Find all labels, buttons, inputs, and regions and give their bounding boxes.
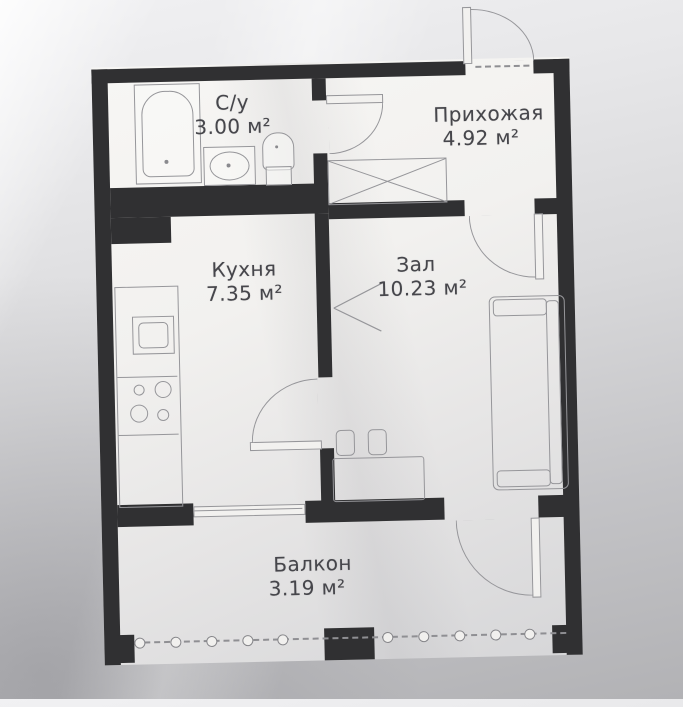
kitchen-sink-bowl	[138, 322, 169, 349]
sofa-armrest	[497, 469, 551, 487]
room-label-balcony: Балкон 3.19 м²	[273, 551, 353, 601]
room-label-hallway: Прихожая 4.92 м²	[433, 100, 544, 150]
room-label-kitchen: Кухня 7.35 м²	[205, 256, 283, 306]
wall	[538, 495, 565, 518]
wall	[534, 198, 558, 215]
bathtub-drain	[164, 160, 168, 164]
wall	[552, 625, 569, 653]
floor-plan: С/у 3.00 м² Прихожая 4.92 м² Кухня 7.35 …	[0, 0, 683, 707]
room-name: Зал	[371, 251, 461, 277]
wall	[312, 78, 326, 100]
toilet-tank	[266, 166, 292, 186]
stool	[368, 429, 388, 455]
room-name: Кухня	[205, 256, 282, 282]
toilet-drain	[275, 145, 278, 148]
wardrobe	[327, 158, 447, 206]
room-name: Прихожая	[433, 100, 544, 126]
washbasin-drain	[227, 163, 231, 167]
room-label-bathroom: С/у 3.00 м²	[193, 90, 271, 140]
room-area: 3.19 м²	[268, 575, 347, 601]
room-area: 4.92 м²	[426, 124, 537, 150]
table	[332, 456, 425, 502]
wall	[110, 183, 329, 218]
wall	[313, 153, 328, 184]
toilet	[262, 132, 295, 171]
wall	[111, 217, 172, 244]
wall	[118, 635, 135, 663]
wardrobe-cross-icon	[328, 159, 446, 205]
bathtub-basin	[141, 90, 195, 177]
room-area: 3.00 м²	[194, 114, 271, 140]
room-name: Балкон	[273, 551, 352, 577]
entrance-door-swing	[470, 8, 534, 62]
room-label-living: Зал 10.23 м²	[377, 251, 468, 301]
room-area: 7.35 м²	[206, 280, 283, 306]
photo-of-floor-plan: { "document": { "type": "apartment-floor…	[0, 0, 683, 699]
room-area: 10.23 м²	[377, 275, 467, 301]
sofa-armrest	[493, 298, 547, 316]
wall	[305, 498, 444, 523]
stool	[336, 430, 356, 456]
room-name: С/у	[193, 90, 270, 116]
balcony-pillar	[324, 627, 375, 660]
